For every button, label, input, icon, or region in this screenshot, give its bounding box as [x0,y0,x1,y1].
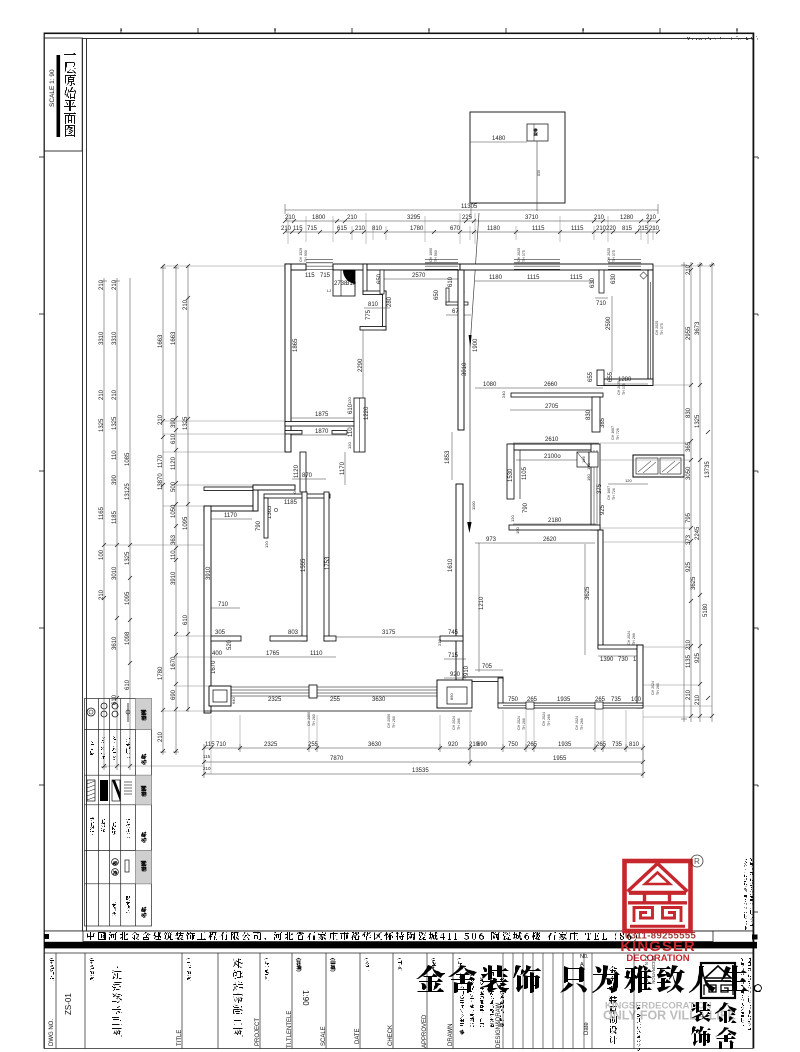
svg-text:2610: 2610 [545,437,559,443]
svg-text:735: 735 [611,697,622,703]
svg-text:1555: 1555 [301,558,307,572]
svg-text:CH 1529: CH 1529 [299,248,303,262]
svg-text:1935: 1935 [557,697,571,703]
svg-text:210: 210 [281,226,292,232]
svg-text:110: 110 [171,550,177,560]
svg-text:ZS-01: ZS-01 [64,993,73,1015]
svg-text:2290: 2290 [358,358,364,372]
svg-text:DECORATION: DECORATION [651,956,656,984]
svg-text:3625: 3625 [585,586,591,600]
svg-text:3625: 3625 [691,576,697,590]
svg-text:TI.TLENTELE: TI.TLENTELE [287,1011,293,1048]
svg-text:TH 900: TH 900 [304,250,308,262]
svg-text:N0.: N0. [580,954,589,960]
svg-text:210: 210 [594,215,605,221]
svg-text:c: c [428,27,430,32]
svg-text:830: 830 [537,170,541,176]
svg-text:1325: 1325 [125,551,131,565]
svg-text:210: 210 [203,766,211,771]
svg-text:1080: 1080 [483,382,497,388]
svg-text:1325: 1325 [112,416,118,430]
svg-text:2180: 2180 [548,518,562,524]
svg-text:690: 690 [477,742,488,748]
svg-text:400: 400 [212,651,223,657]
svg-text:920: 920 [448,742,459,748]
svg-text:210: 210 [355,226,366,232]
svg-text:TH 266: TH 266 [656,683,660,695]
svg-text:2100o: 2100o [544,454,561,460]
svg-text:TH 560: TH 560 [434,250,438,262]
svg-text:1115: 1115 [527,275,540,281]
svg-text:2590: 2590 [606,316,612,330]
svg-text:d: d [582,27,584,32]
svg-text:SCALE: SCALE [321,1026,327,1046]
svg-text:LJ: LJ [327,288,331,293]
svg-text:2660: 2660 [544,382,558,388]
svg-text:3630: 3630 [368,742,382,748]
svg-text:DATE: DATE [355,1028,361,1044]
svg-text:186: 186 [581,456,586,463]
svg-text:K I N G S E R: K I N G S E R [644,956,649,982]
svg-text:1170: 1170 [340,461,346,475]
svg-text:920: 920 [450,672,461,678]
svg-text:730: 730 [618,657,629,663]
svg-text:R: R [694,857,700,866]
svg-text:710: 710 [596,301,607,307]
svg-text:210: 210 [158,414,164,425]
svg-text:DECORATION: DECORATION [626,953,689,964]
svg-text:115: 115 [205,742,215,748]
svg-text:115: 115 [293,226,303,232]
svg-text:7870: 7870 [330,756,344,762]
svg-text:690: 690 [171,689,177,700]
svg-text:5180: 5180 [703,603,709,617]
svg-text:1115: 1115 [570,275,583,281]
svg-text:115: 115 [203,754,211,759]
svg-text:640: 640 [231,697,236,704]
svg-text:CH 2024: CH 2024 [627,631,631,645]
svg-text:210: 210 [99,589,105,600]
svg-text:280: 280 [387,296,393,307]
svg-text:265: 265 [527,742,538,748]
svg-text:373: 373 [686,534,692,545]
svg-text:3295: 3295 [407,215,421,221]
svg-text:CH 2050: CH 2050 [387,714,391,728]
svg-text:3010: 3010 [112,566,118,580]
svg-text:925: 925 [686,561,692,572]
svg-text:120: 120 [264,541,269,548]
svg-text:810: 810 [629,742,640,748]
svg-text:790: 790 [256,520,262,531]
svg-text:120: 120 [625,478,632,483]
svg-text:2245: 2245 [695,526,701,540]
svg-text:815: 815 [622,226,633,232]
svg-text:TH 375: TH 375 [660,323,664,335]
svg-text:CH 2025: CH 2025 [607,248,611,262]
svg-text:CH 1607: CH 1607 [611,426,615,440]
svg-text:2325: 2325 [264,742,278,748]
svg-text:630: 630 [590,277,596,288]
svg-text:1170: 1170 [224,513,238,519]
svg-text:210: 210 [686,639,692,650]
svg-text:1765: 1765 [266,651,280,657]
svg-text:13735: 13735 [705,461,711,478]
svg-text:1900: 1900 [473,338,479,352]
svg-text:ONLY FOR VILLA LIFE: ONLY FOR VILLA LIFE [603,1009,736,1023]
svg-text:210: 210 [285,215,296,221]
svg-text:1050: 1050 [171,504,177,518]
svg-text:DRAWN: DRAWN [448,1024,454,1046]
svg-text:1110: 1110 [310,651,323,657]
svg-text:1780: 1780 [158,666,164,680]
svg-text:1875: 1875 [315,412,329,418]
svg-text:210: 210 [112,279,118,290]
svg-text:2325: 2325 [268,697,282,703]
svg-text:120: 120 [347,397,352,404]
svg-text:670: 670 [450,226,461,232]
svg-text:850: 850 [449,693,454,700]
svg-text:TH 375: TH 375 [622,383,626,395]
svg-text:775: 775 [366,309,372,320]
svg-text:810: 810 [372,226,383,232]
svg-text:630: 630 [611,273,617,284]
svg-text:3673: 3673 [695,321,701,335]
svg-text:1480: 1480 [492,136,506,142]
svg-text:210: 210 [695,694,701,705]
svg-text:870: 870 [302,473,313,479]
svg-text:365: 365 [686,441,692,452]
svg-text:1280: 1280 [620,215,634,221]
svg-text:655: 655 [588,371,594,382]
svg-text:3910: 3910 [462,362,468,376]
svg-text:1115: 1115 [532,226,545,232]
svg-text:1100: 1100 [471,501,476,510]
svg-text:TH 375: TH 375 [522,250,526,262]
svg-text:1220: 1220 [364,406,370,420]
svg-text:1753: 1753 [325,556,331,570]
svg-text:390: 390 [112,474,118,485]
svg-text:1115: 1115 [571,226,584,232]
svg-text:1325: 1325 [99,418,105,432]
svg-text:210: 210 [112,389,118,400]
svg-text:1780: 1780 [410,226,424,232]
svg-text:2620: 2620 [543,537,557,543]
svg-text:265: 265 [595,697,606,703]
svg-text:715: 715 [448,653,459,659]
svg-text:610: 610 [171,433,177,444]
svg-text:DESIGN&DRAW: DESIGN&DRAW [496,1003,502,1048]
svg-text:210: 210 [158,731,164,742]
svg-text:APPROVED: APPROVED [422,1014,428,1048]
svg-text:210: 210 [183,299,189,310]
svg-text:3910: 3910 [206,566,212,580]
svg-text:PROJECT: PROJECT [255,1018,261,1046]
svg-text:830: 830 [686,407,692,418]
svg-text:3175: 3175 [382,630,396,636]
svg-text:375: 375 [597,483,603,494]
svg-text:c: c [757,469,759,474]
svg-text:TITLE: TITLE [177,1030,183,1046]
svg-text:745: 745 [448,630,459,636]
svg-text:265: 265 [527,697,538,703]
svg-text:190: 190 [586,474,591,481]
svg-text:11305: 11305 [461,204,478,210]
svg-text:120: 120 [347,442,352,449]
svg-text:615: 615 [337,226,348,232]
svg-text:1870: 1870 [315,429,329,435]
svg-text:795: 795 [686,512,692,523]
svg-text:1095: 1095 [183,516,189,530]
svg-text:1955: 1955 [553,756,567,762]
svg-text:215: 215 [638,226,649,232]
svg-text:TH 266: TH 266 [632,633,636,645]
svg-text:265: 265 [596,742,607,748]
svg-text:715: 715 [320,273,331,279]
svg-text:120: 120 [510,515,515,522]
svg-text:1935: 1935 [558,742,572,748]
svg-text:DWG NO.: DWG NO. [49,1019,55,1046]
svg-text:1180: 1180 [487,226,501,232]
svg-text:1853: 1853 [445,450,451,464]
svg-text:CH 2024: CH 2024 [452,716,456,730]
svg-text:CH 2024: CH 2024 [542,712,546,726]
svg-text:790: 790 [523,502,529,513]
svg-text:CH 1607: CH 1607 [607,486,611,500]
svg-text:1095: 1095 [125,591,131,605]
svg-text:TH 266: TH 266 [547,714,551,726]
svg-text:1530: 1530 [508,468,514,482]
svg-text:810: 810 [368,302,379,308]
svg-text:210: 210 [649,226,660,232]
svg-text:390: 390 [171,417,177,428]
svg-text:TH 726: TH 726 [616,428,620,440]
svg-text:1610: 1610 [448,558,454,572]
svg-text:2570: 2570 [412,273,426,279]
svg-text:1185: 1185 [112,510,118,524]
svg-text:CH 2025: CH 2025 [517,248,521,262]
svg-text:655: 655 [608,371,614,382]
svg-text:210: 210 [99,279,105,290]
svg-text:110: 110 [112,450,118,460]
svg-text:305: 305 [215,630,226,636]
svg-text:925: 925 [695,652,701,663]
svg-text:TH 375: TH 375 [612,250,616,262]
svg-text:925: 925 [600,504,606,515]
svg-text:1170: 1170 [158,454,164,468]
svg-text:1390: 1390 [600,657,614,663]
svg-text:CH 2024: CH 2024 [575,716,579,730]
svg-text:830: 830 [586,409,592,420]
svg-text:CHECK: CHECK [388,1025,394,1046]
svg-text:1210: 1210 [479,596,485,610]
svg-text:803: 803 [288,630,299,636]
svg-text:d: d [757,626,759,631]
svg-text:190: 190 [586,463,591,470]
svg-text:973: 973 [486,537,497,543]
svg-text:1105: 1105 [522,466,528,480]
svg-text:CH 2050: CH 2050 [307,712,311,726]
svg-text:210: 210 [347,215,358,221]
svg-text:1135: 1135 [686,654,692,668]
svg-text:385: 385 [600,417,606,428]
svg-text:Date: Date [584,1022,590,1035]
svg-text:210: 210 [646,215,657,221]
svg-text:TH 266: TH 266 [457,718,461,730]
svg-text:SCALE 1: 90: SCALE 1: 90 [49,69,56,107]
svg-text:100: 100 [631,697,642,703]
svg-text:CH 2024: CH 2024 [517,716,521,730]
svg-text:210: 210 [437,639,442,646]
svg-text:TH 266: TH 266 [522,718,526,730]
svg-text:1325: 1325 [695,414,701,428]
svg-text:1180: 1180 [489,275,503,281]
svg-text:CH 1600: CH 1600 [429,248,433,262]
svg-text:363: 363 [171,534,177,545]
svg-text:13125: 13125 [125,483,131,500]
svg-text:1098: 1098 [125,631,131,645]
svg-text:610: 610 [183,614,189,625]
svg-text:TH 260: TH 260 [312,714,316,726]
svg-text:610: 610 [125,679,131,690]
svg-text:1085: 1085 [125,452,131,466]
svg-text:750: 750 [508,742,519,748]
svg-text:500: 500 [171,481,177,492]
svg-text:TH 266: TH 266 [580,718,584,730]
svg-text:2705: 2705 [545,404,559,410]
svg-text:210: 210 [686,264,692,275]
svg-text:115: 115 [305,273,315,279]
svg-text:1185: 1185 [284,500,298,506]
svg-text:710: 710 [216,742,227,748]
svg-text:13870: 13870 [158,473,164,490]
svg-text:3050: 3050 [686,466,692,480]
svg-text:210: 210 [686,689,692,700]
svg-text:1120: 1120 [171,456,177,470]
svg-text:750: 750 [508,697,519,703]
svg-text:1120: 1120 [294,464,300,478]
svg-text:3910: 3910 [171,571,177,585]
svg-text:705: 705 [482,664,493,670]
svg-text:3710: 3710 [525,215,539,221]
svg-text:TH 260: TH 260 [392,716,396,728]
svg-text:3630: 3630 [372,697,386,703]
svg-text:310: 310 [346,281,357,287]
svg-text:735: 735 [612,742,623,748]
svg-text:3610: 3610 [112,636,118,650]
svg-text:1800: 1800 [312,215,326,221]
svg-text:1165: 1165 [99,506,105,520]
svg-text:210: 210 [99,389,105,400]
svg-text:910: 910 [464,665,470,676]
svg-text:CH 2024: CH 2024 [651,681,655,695]
svg-text:TH 726: TH 726 [612,488,616,500]
svg-text:CH 2025: CH 2025 [655,321,659,335]
svg-text:255: 255 [330,697,341,703]
svg-text:1663: 1663 [158,334,164,348]
svg-text:100: 100 [99,549,105,560]
svg-text:520: 520 [227,639,233,650]
svg-text:240: 240 [501,391,506,398]
svg-text:CH 2025: CH 2025 [617,381,621,395]
svg-text:110: 110 [348,427,354,437]
svg-text:100: 100 [515,527,520,534]
svg-text:1325: 1325 [183,416,189,430]
svg-text:1670: 1670 [171,656,177,670]
svg-text:1:90: 1:90 [301,990,310,1006]
svg-text:650: 650 [434,289,440,300]
svg-text:1670: 1670 [211,660,217,674]
svg-text:13535: 13535 [412,768,429,774]
svg-text:715: 715 [307,226,318,232]
svg-text:3310: 3310 [112,331,118,345]
svg-text:220: 220 [606,226,617,232]
svg-text:710: 710 [218,602,229,608]
svg-text:2955: 2955 [686,326,692,340]
svg-text:3310: 3310 [99,331,105,345]
svg-text:610: 610 [448,276,454,287]
svg-text:1663: 1663 [171,331,177,345]
svg-text:1865: 1865 [293,338,299,352]
